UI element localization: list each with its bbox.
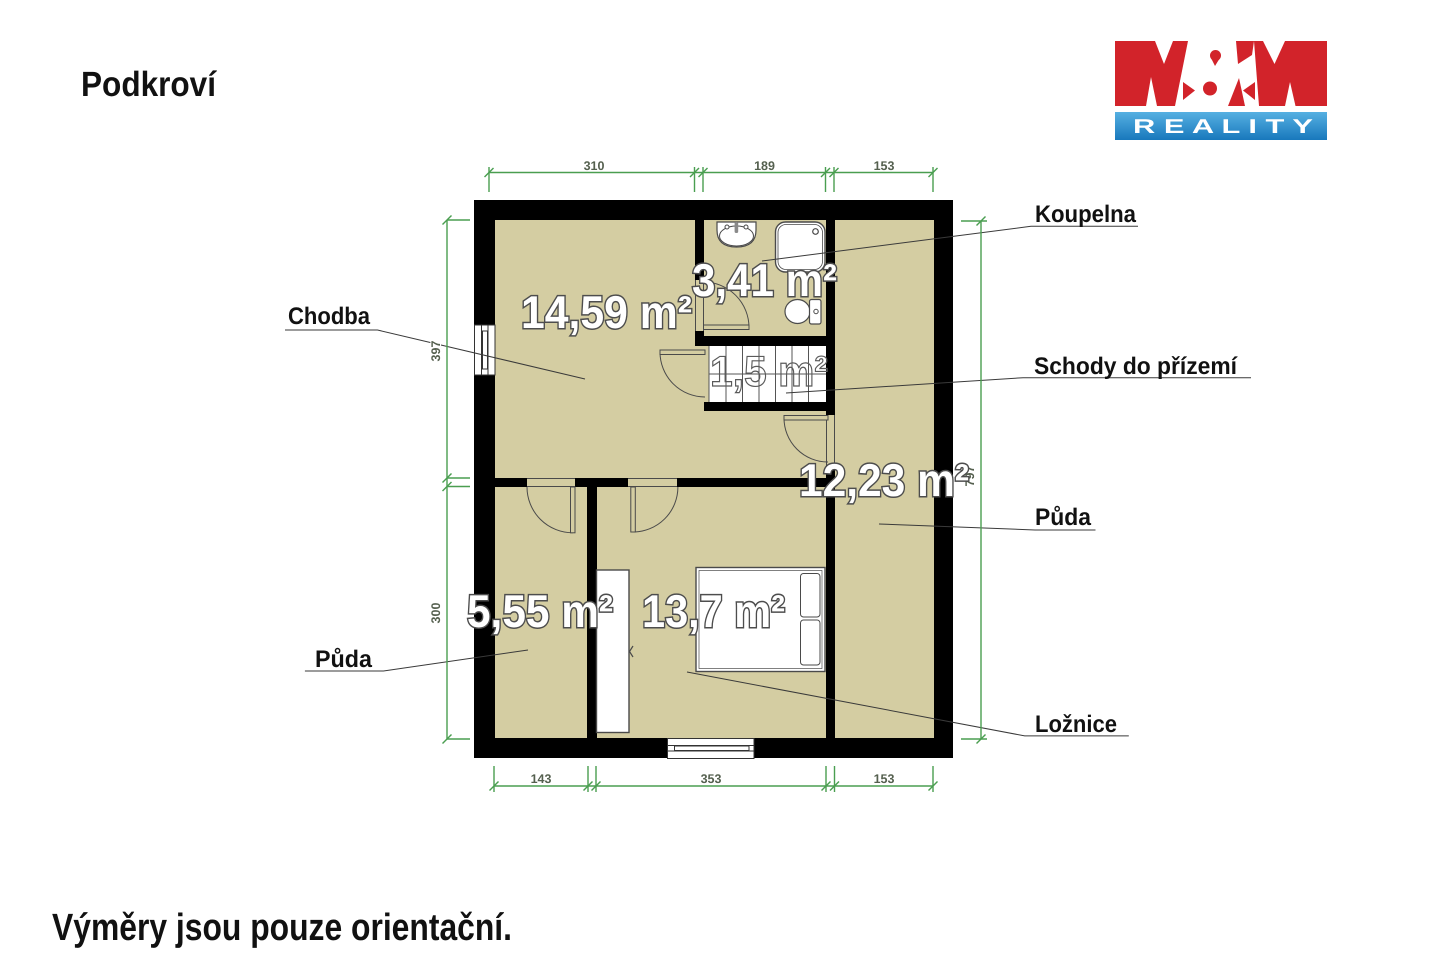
svg-text:353: 353 [701, 772, 722, 786]
svg-text:Podkroví: Podkroví [81, 65, 217, 104]
svg-text:Výměry jsou pouze orientační.: Výměry jsou pouze orientační. [52, 907, 512, 949]
svg-text:Koupelna: Koupelna [1035, 201, 1137, 228]
svg-text:R E A L I T Y: R E A L I T Y [1133, 116, 1314, 138]
svg-text:12,23 m²: 12,23 m² [799, 454, 969, 506]
svg-text:Chodba: Chodba [288, 303, 371, 330]
svg-text:Ložnice: Ložnice [1035, 711, 1117, 738]
svg-text:300: 300 [429, 603, 443, 624]
svg-text:153: 153 [874, 772, 895, 786]
svg-text:143: 143 [531, 772, 552, 786]
svg-text:5,55 m²: 5,55 m² [467, 585, 613, 637]
svg-text:3,41 m²: 3,41 m² [692, 254, 837, 306]
svg-text:397: 397 [429, 341, 443, 362]
svg-text:Půda: Půda [315, 646, 373, 673]
svg-text:189: 189 [754, 159, 775, 173]
svg-text:310: 310 [584, 159, 605, 173]
svg-text:14,59 m²: 14,59 m² [521, 286, 692, 338]
svg-text:13,7 m²: 13,7 m² [642, 585, 785, 637]
svg-text:1,5 m²: 1,5 m² [710, 348, 828, 396]
svg-text:Půda: Půda [1035, 504, 1092, 531]
svg-text:153: 153 [874, 159, 895, 173]
svg-text:Schody do přízemí: Schody do přízemí [1034, 353, 1238, 380]
